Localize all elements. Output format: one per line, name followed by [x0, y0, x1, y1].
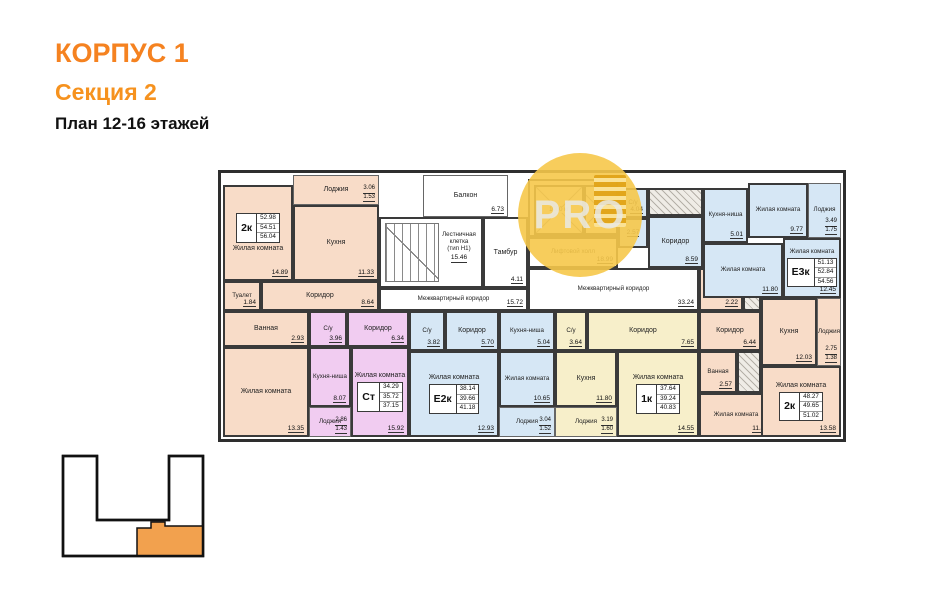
- room-kitchen-niche: Кухня-ниша 5.01: [703, 188, 748, 243]
- plan-header: КОРПУС 1 Секция 2 План 12-16 этажей: [55, 40, 209, 132]
- ventilation-shaft: [737, 351, 761, 393]
- apartment-label-e3k: Е3к 51.13 52.84 54.56: [787, 258, 838, 288]
- room-living: Жилая комната 9.77: [748, 183, 808, 238]
- room-corridor: Коридор 7.65: [587, 311, 699, 351]
- room-loggia: Лоджия 2.86 1.43: [309, 407, 351, 437]
- floor-range-title: План 12-16 этажей: [55, 115, 209, 132]
- apartment-label-st: Ст 34.29 35.72 37.15: [357, 382, 403, 412]
- room-bathroom: Ванная 2.57: [699, 351, 737, 393]
- room-kitchen: Кухня 12.03: [761, 298, 817, 366]
- room-loggia: Лоджия 3.19 1.60: [555, 407, 617, 437]
- room-living: Жилая комната Е3к 51.13 52.84 54.56 12.4…: [783, 238, 841, 298]
- room-loggia: Лоджия 2.75 1.38: [817, 298, 841, 366]
- room-kitchen: Кухня 11.33: [293, 205, 379, 281]
- room-toilet: Туалет 1.84: [223, 281, 261, 311]
- room-staircase: Лестничная клетка (тип Н1) 15.46: [379, 217, 483, 288]
- apartment-label-e2k: Е2к 38.14 39.66 41.18: [429, 384, 480, 414]
- room-corridor: Коридор 6.44: [699, 311, 761, 351]
- room-common-corridor-right: Межквартирный коридор 33.24: [528, 268, 699, 311]
- room-living: Жилая комната 13.35: [223, 347, 309, 437]
- room-living: Жилая комната 1к 37.64 39.24 40.83 14.55: [617, 351, 699, 437]
- pro-watermark: PRO: [518, 153, 642, 277]
- room-living: Жилая комната Ст 34.29 35.72 37.15 15.92: [351, 347, 409, 437]
- apartment-label-2k-br: 2к 48.27 49.65 51.02: [779, 392, 823, 422]
- room-living: 2к 52.98 54.51 56.04 Жилая комната 14.89: [223, 185, 293, 281]
- room-balcony: Балкон 6.73: [423, 175, 508, 217]
- room-common-corridor-left: Межквартирный коридор 15.72: [379, 288, 528, 311]
- room-su: С/у 3.82: [409, 311, 445, 351]
- apartment-label-2k-tl: 2к 52.98 54.51 56.04: [236, 213, 280, 243]
- room-su: С/у 3.64: [555, 311, 587, 351]
- room-loggia: Лоджия 3.04 1.52: [499, 407, 555, 437]
- room-kitchen-niche: Кухня-ниша 5.04: [499, 311, 555, 351]
- room-loggia: Лоджия 3.49 1.75: [808, 183, 841, 238]
- room-kitchen: Кухня 11.80: [555, 351, 617, 407]
- minimap-outline: [53, 450, 213, 562]
- room-corridor: Коридор 5.70: [445, 311, 499, 351]
- room-bathroom: Ванная 2.93: [223, 311, 309, 347]
- room-loggia: Лоджия 3.06 1.53: [293, 175, 379, 205]
- room-living: Жилая комната 11.80: [703, 243, 783, 298]
- building-title: КОРПУС 1: [55, 40, 209, 67]
- room-kitchen-niche: Кухня-ниша 8.07: [309, 347, 351, 407]
- room-living: Жилая комната 2к 48.27 49.65 51.02 13.58: [761, 366, 841, 437]
- room-corridor: Коридор 6.34: [347, 311, 409, 347]
- room-living: Жилая комната 10.65: [499, 351, 555, 407]
- section-title: Секция 2: [55, 81, 209, 104]
- building-minimap: [53, 450, 213, 567]
- ventilation-shaft: [648, 188, 703, 216]
- room-su: С/у 3.96: [309, 311, 347, 347]
- apartment-label-1k: 1к 37.64 39.24 40.83: [636, 384, 680, 414]
- room-corridor: Коридор 8.64: [261, 281, 379, 311]
- watermark-text: PRO: [534, 193, 627, 238]
- room-corridor: Коридор 8.59: [648, 216, 703, 268]
- stair-flight-icon: [385, 223, 439, 282]
- room-living: Жилая комната Е2к 38.14 39.66 41.18 12.9…: [409, 351, 499, 437]
